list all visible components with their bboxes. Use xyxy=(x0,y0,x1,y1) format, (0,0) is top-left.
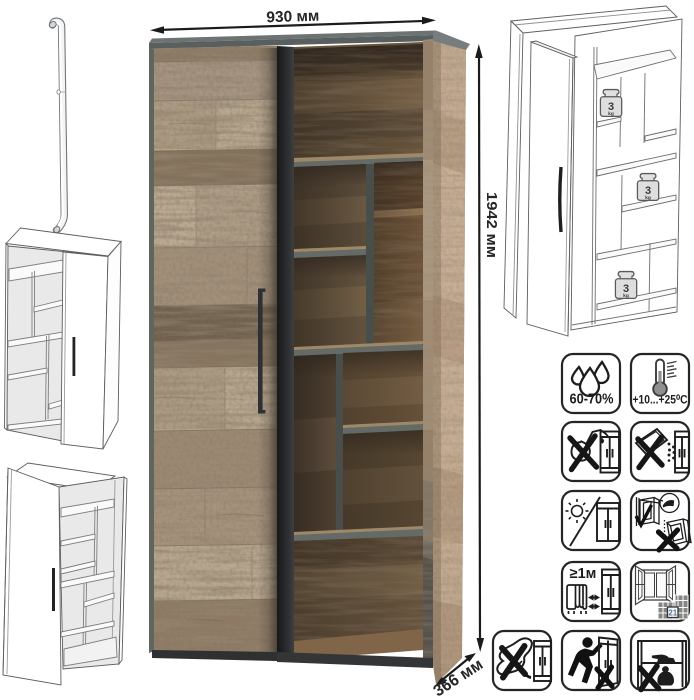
svg-text:930 мм: 930 мм xyxy=(266,8,320,27)
svg-text:≥1м: ≥1м xyxy=(570,566,597,582)
svg-text:3: 3 xyxy=(623,283,629,295)
svg-text:3: 3 xyxy=(608,101,614,113)
svg-text:1942 мм: 1942 мм xyxy=(483,192,500,258)
svg-text:21: 21 xyxy=(668,609,677,618)
svg-text:kg: kg xyxy=(608,111,614,117)
svg-text:3: 3 xyxy=(645,185,651,197)
svg-text:+10...+25⁰С: +10...+25⁰С xyxy=(633,393,688,407)
svg-text:kg: kg xyxy=(645,195,651,201)
svg-text:60-70%: 60-70% xyxy=(570,392,614,408)
svg-text:kg: kg xyxy=(623,293,629,299)
